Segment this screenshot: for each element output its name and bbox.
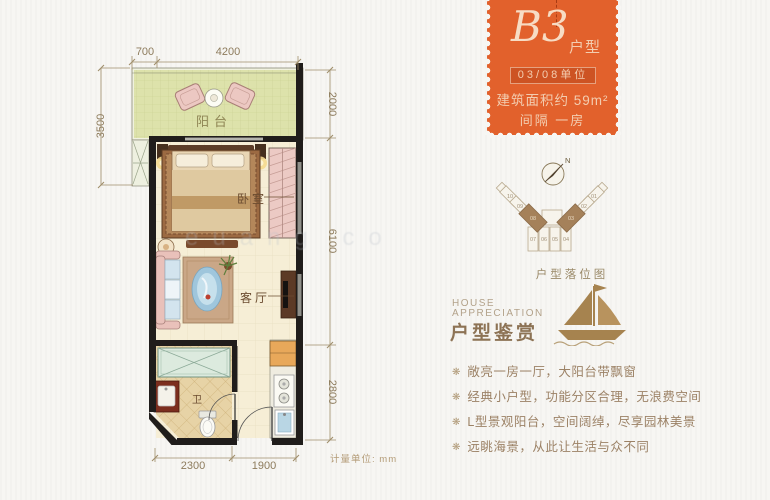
stamp-perforation (487, 131, 618, 140)
bath-label: 卫 (192, 391, 202, 406)
selling-point: ❋ 远眺海景，从此让生活与众不同 (452, 440, 752, 455)
kitchen-cabinet (270, 341, 296, 366)
compass-icon: N (542, 156, 570, 185)
selling-point: ❋ L型景观阳台，空间阔绰，尽享园林美景 (452, 415, 752, 430)
locator-map: N 10 (480, 150, 664, 265)
flower-bullet-icon: ❋ (452, 440, 460, 455)
unit-numbers-badge: 03/08单位 (510, 67, 596, 84)
svg-text:01: 01 (591, 194, 597, 200)
dim-2800: 2800 (326, 375, 338, 409)
unit-code: B3 (511, 6, 569, 48)
flower-bullet-icon: ❋ (452, 415, 460, 430)
watermark: euang co (185, 224, 396, 252)
unit-code-suffix: 户型 (569, 36, 601, 57)
selling-point: ❋ 敞亮一房一厅，大阳台带飘窗 (452, 365, 752, 380)
flower-bullet-icon: ❋ (452, 365, 460, 380)
dim-4200: 4200 (203, 46, 253, 58)
dim-1900: 1900 (244, 460, 284, 472)
selling-point-text: 经典小户型，功能分区合理，无浪费空间 (467, 390, 701, 404)
tv (283, 281, 288, 308)
svg-text:03: 03 (568, 216, 574, 222)
unit-stamp: B3 户型 03/08单位 建筑面积约 59m² 间隔 一房 (487, 0, 618, 135)
svg-text:09: 09 (517, 204, 523, 210)
selling-points: ❋ 敞亮一房一厅，大阳台带飘窗 ❋ 经典小户型，功能分区合理，无浪费空间 ❋ L… (452, 365, 752, 465)
svg-text:04: 04 (563, 237, 569, 243)
unit-area: 建筑面积约 59m² (487, 89, 618, 109)
appreciation-title: 户型鉴赏 (450, 318, 538, 345)
living-label: 客厅 (240, 289, 270, 306)
svg-text:05: 05 (552, 237, 558, 243)
dim-3500: 3500 (95, 109, 107, 143)
dim-700: 700 (130, 46, 160, 58)
selling-point-text: 敞亮一房一厅，大阳台带飘窗 (467, 365, 636, 379)
selling-point-text: L型景观阳台，空间阔绰，尽享园林美景 (467, 415, 695, 429)
unit-layout: 间隔 一房 (487, 110, 618, 129)
unit-locator: N 10 (480, 150, 664, 284)
svg-text:10: 10 (507, 194, 513, 200)
bedroom-label: 卧室 (237, 190, 267, 207)
svg-text:07: 07 (530, 237, 536, 243)
dim-2300: 2300 (173, 460, 213, 472)
svg-text:08: 08 (530, 216, 536, 222)
svg-text:06: 06 (541, 237, 547, 243)
selling-point-text: 远眺海景，从此让生活与众不同 (467, 440, 649, 454)
sailboat-icon (542, 280, 634, 346)
flyer-page: 阳台 卧室 客厅 卫 700 4200 3500 2000 6100 2800 … (0, 0, 770, 500)
sofa (156, 256, 165, 324)
unit-note: 计量单位: mm (330, 451, 397, 465)
dim-2000: 2000 (326, 87, 338, 121)
compass-north-label: N (565, 156, 570, 165)
selling-point: ❋ 经典小户型，功能分区合理，无浪费空间 (452, 390, 752, 405)
kitchen (270, 340, 296, 438)
balcony-label: 阳台 (196, 111, 232, 130)
flower-bullet-icon: ❋ (452, 390, 460, 405)
svg-text:02: 02 (581, 204, 587, 210)
window (298, 274, 302, 316)
